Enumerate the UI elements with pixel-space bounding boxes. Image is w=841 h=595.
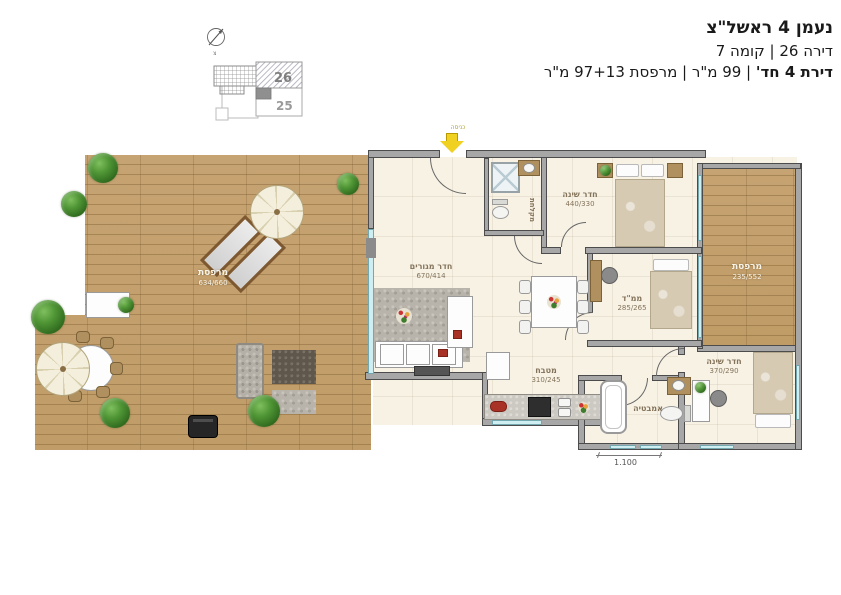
wall-bedroom1-bottom-b [585, 247, 702, 254]
toilet [492, 206, 509, 219]
title-block: נעמן 4 ראשל"צ דירה 26 | קומה 7 דירת 4 חד… [544, 16, 833, 84]
balcony-label: מרפסת 235/552 [710, 262, 784, 282]
shower-stall [491, 162, 520, 193]
wall-balcony-top [697, 163, 801, 169]
project-title: נעמן 4 ראשל"צ [544, 16, 833, 41]
sofa-cushion [380, 344, 404, 365]
red-pillow [438, 349, 448, 357]
outdoor-chair [76, 331, 90, 343]
bed2-window-bottom [700, 445, 734, 449]
plant [248, 395, 280, 427]
bed2-window-right [796, 365, 800, 420]
bedroom-master-dims: 440/330 [552, 200, 608, 209]
outdoor-chair [110, 362, 123, 375]
living-dims: 670/414 [398, 272, 464, 281]
balcony-deck [700, 166, 795, 347]
shower-sink [523, 163, 535, 173]
plant [88, 153, 118, 183]
wall-top-main [466, 150, 706, 158]
kitchen-sink [558, 398, 571, 407]
plant [118, 297, 134, 313]
plant [61, 191, 87, 217]
mamad-name: ממ"ד [606, 294, 658, 304]
dining-chair [577, 320, 589, 334]
plant [337, 173, 359, 195]
kitchen-dims: 310/245 [518, 376, 574, 385]
red-pillow [453, 330, 462, 339]
bath-window-b [640, 445, 662, 449]
desk-chair [710, 390, 727, 407]
wall-mamad-bottom [587, 340, 702, 347]
pillow [653, 259, 689, 271]
kitchen-window [492, 420, 542, 425]
chaise-lounge [447, 296, 473, 348]
pillow [755, 414, 791, 428]
bedroom-window [698, 175, 702, 241]
stove [528, 397, 551, 417]
bedroom2-name: חדר שינה [695, 357, 753, 367]
pillow [616, 164, 639, 177]
dining-chair [519, 320, 531, 334]
desk-chair [601, 267, 618, 284]
bed2 [753, 352, 793, 414]
apartment-floor-line: דירה 26 | קומה 7 [544, 41, 833, 63]
dining-chair [577, 280, 589, 294]
living-label: חדר מגורים 670/414 [398, 262, 464, 281]
balcony-dims: 235/552 [710, 273, 784, 282]
bath-window-a [610, 445, 636, 449]
compass-icon: צ [203, 24, 229, 56]
floorplan-page: נעמן 4 ראשל"צ דירה 26 | קומה 7 דירת 4 חד… [0, 0, 841, 595]
bedroom-master-label: חדר שינה 440/330 [552, 190, 608, 209]
keyplan: 26 25 [212, 58, 306, 124]
wall-bed2-bottom [678, 443, 801, 450]
dining-chair [577, 300, 589, 314]
keyplan-unit-26: 26 [274, 71, 292, 86]
sofa-cushion [406, 344, 430, 365]
umbrella [36, 342, 90, 396]
apartment-details-line: דירת 4 חד' | 99 מ"ר | מרפסת 97+13 מ"ר [544, 62, 833, 84]
apartment-areas: | 99 מ"ר | מרפסת 97+13 מ"ר [544, 63, 756, 81]
bedroom2-dims: 370/290 [695, 367, 753, 376]
balcony-name: מרפסת [710, 262, 784, 273]
plant [695, 382, 706, 393]
outdoor-chair [96, 386, 110, 398]
toilet-tank [684, 405, 691, 422]
bathroom-label: אמבטיה [626, 404, 670, 414]
bedroom-master-name: חדר שינה [552, 190, 608, 200]
kitchen-name: מטבח [518, 366, 574, 376]
mamad-window [698, 256, 702, 338]
shower-label: מקלחת [528, 180, 536, 222]
terrace-label: מרפסת 634/660 [180, 268, 246, 288]
bathroom-name: אמבטיה [626, 404, 670, 414]
dining-chair [519, 280, 531, 294]
tv-console [414, 366, 450, 376]
terrace-door-opening [366, 238, 376, 258]
umbrella [250, 185, 304, 239]
plant [100, 398, 130, 428]
entrance-arrow-icon [440, 141, 464, 153]
dining-flowers [547, 295, 561, 309]
outdoor-chair [100, 337, 114, 349]
wall-hall-left [368, 157, 374, 229]
plant [31, 300, 65, 334]
dimension-value: 1.100 [614, 458, 637, 467]
apartment-rooms: דירת 4 חד' [756, 63, 833, 81]
bedroom2-label: חדר שינה 370/290 [695, 357, 753, 376]
wall-shower-left [484, 158, 489, 236]
terrace-name: מרפסת [180, 268, 246, 279]
bath-sink [672, 380, 685, 391]
entrance-label: כניסה [438, 124, 478, 131]
kitchen-sink [558, 408, 571, 417]
mamad-dims: 285/265 [606, 304, 658, 313]
wall-bedroom1-bottom-a [541, 247, 561, 254]
outdoor-rug [272, 350, 316, 384]
terrace-dims: 634/660 [180, 279, 246, 288]
nightstand [667, 163, 683, 178]
living-name: חדר מגורים [398, 262, 464, 272]
bathtub [600, 380, 627, 434]
outdoor-sofa [236, 343, 264, 399]
dining-chair [519, 300, 531, 314]
compass-north-label: צ [213, 50, 217, 56]
counter-items [578, 402, 589, 413]
toilet-tank [492, 199, 508, 205]
mamad-label: ממ"ד 285/265 [606, 294, 658, 313]
plant [600, 165, 611, 176]
bbq-grill [188, 415, 218, 438]
kitchen-label: מטבח 310/245 [518, 366, 574, 385]
keyplan-unit-25: 25 [276, 99, 293, 113]
coffee-table-flowers [396, 308, 412, 324]
wall-top-left [368, 150, 440, 158]
desk [590, 260, 602, 302]
dimension-line [596, 455, 662, 456]
red-pot [490, 401, 507, 412]
double-bed [615, 179, 665, 247]
wall-balcony-bottom [697, 345, 801, 352]
fridge [486, 352, 510, 380]
pillow [641, 164, 664, 177]
